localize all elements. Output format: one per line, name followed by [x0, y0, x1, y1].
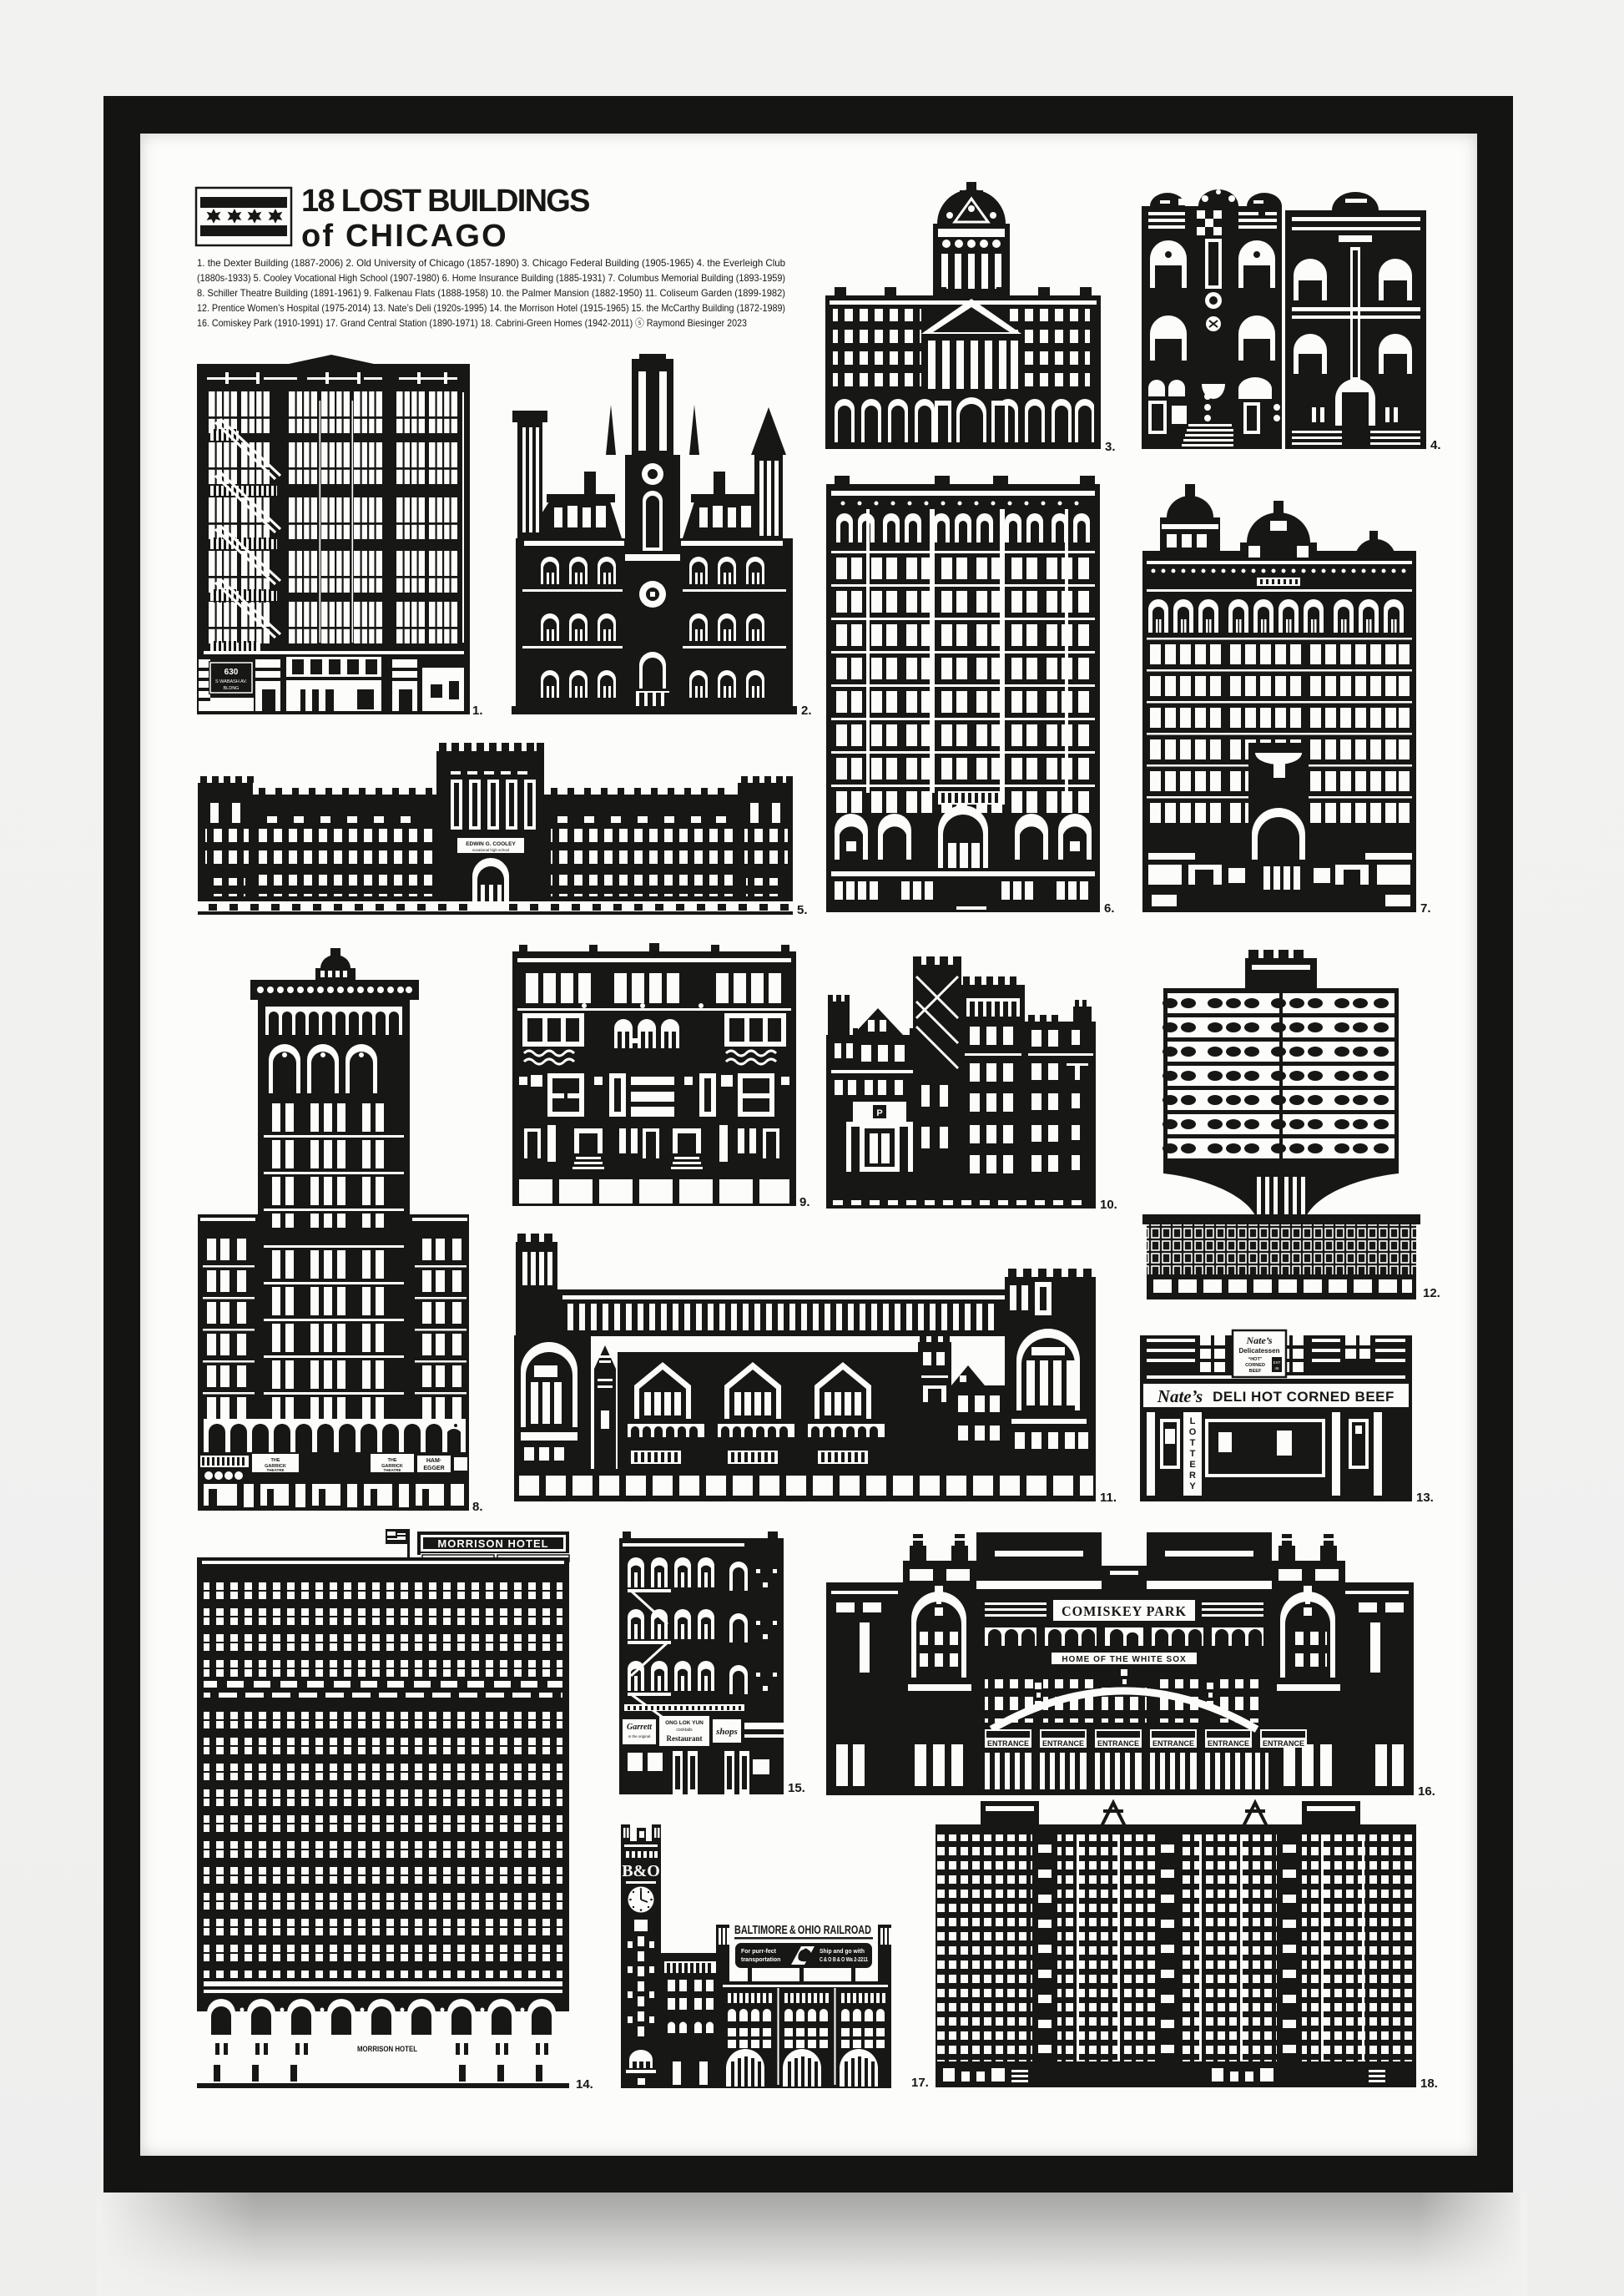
svg-text:18.: 18.	[1420, 2076, 1438, 2091]
svg-text:8.: 8.	[472, 1500, 483, 1514]
svg-text:HAM·: HAM·	[426, 1458, 441, 1464]
svg-text:Nate’s: Nate’s	[1245, 1335, 1272, 1346]
svg-text:15.: 15.	[788, 1781, 805, 1795]
svg-text:CORNED: CORNED	[1245, 1363, 1265, 1368]
svg-text:EDWIN G. COOLEY: EDWIN G. COOLEY	[466, 841, 516, 847]
svg-text:18 LOST BUILDINGS: 18 LOST BUILDINGS	[301, 184, 589, 219]
svg-text:T: T	[1190, 1449, 1196, 1459]
svg-text:ONG LOK YUN: ONG LOK YUN	[665, 1720, 704, 1726]
svg-text:T: T	[1190, 1438, 1196, 1448]
svg-text:E: E	[1189, 1460, 1195, 1470]
svg-text:of CHICAGO: of CHICAGO	[301, 219, 508, 254]
svg-text:4.: 4.	[1430, 438, 1441, 452]
svg-text:14.: 14.	[576, 2077, 593, 2092]
svg-text:“HOT”: “HOT”	[1248, 1357, 1262, 1362]
svg-text:P: P	[876, 1108, 882, 1118]
svg-text:S WABASH AV.: S WABASH AV.	[215, 679, 247, 684]
svg-text:(1880s-1933) 5. Cooley Vocati: (1880s-1933) 5. Cooley Vocational High S…	[197, 272, 785, 284]
svg-text:MORRISON HOTEL: MORRISON HOTEL	[357, 2045, 417, 2054]
svg-text:EGGER: EGGER	[423, 1466, 444, 1471]
svg-text:Y: Y	[1189, 1481, 1196, 1491]
svg-text:Garrett: Garrett	[627, 1723, 653, 1732]
svg-text:vocational high school: vocational high school	[472, 848, 509, 852]
svg-text:13.: 13.	[1416, 1491, 1434, 1505]
svg-text:2.: 2.	[801, 704, 812, 718]
svg-text:46: 46	[1274, 1366, 1279, 1370]
svg-text:THEATRE: THEATRE	[267, 1468, 285, 1472]
svg-text:THE: THE	[388, 1458, 397, 1463]
svg-text:Nate’s: Nate’s	[1157, 1386, 1203, 1406]
svg-text:ENTRANCE: ENTRANCE	[987, 1739, 1029, 1748]
svg-text:B&O: B&O	[622, 1862, 660, 1880]
svg-text:transportation: transportation	[741, 1957, 780, 1963]
svg-text:BLDNG: BLDNG	[224, 686, 240, 691]
svg-text:BALTIMORE & OHIO RAILROAD: BALTIMORE & OHIO RAILROAD	[734, 1924, 871, 1937]
svg-text:6.: 6.	[1104, 901, 1115, 916]
svg-text:THEATRE: THEATRE	[384, 1468, 401, 1472]
svg-text:MORRISON HOTEL: MORRISON HOTEL	[437, 1537, 548, 1550]
svg-text:O: O	[1189, 1427, 1197, 1437]
svg-text:BEEF: BEEF	[1249, 1369, 1262, 1374]
svg-text:cocktails: cocktails	[676, 1728, 693, 1733]
svg-text:EST: EST	[1273, 1360, 1281, 1365]
svg-text:C & O B & O Wa 2-2211: C & O B & O Wa 2-2211	[820, 1957, 868, 1963]
svg-text:HOME OF THE WHITE SOX: HOME OF THE WHITE SOX	[1062, 1655, 1186, 1664]
svg-text:12.: 12.	[1423, 1286, 1440, 1300]
svg-text:10.: 10.	[1100, 1198, 1117, 1212]
svg-text:R: R	[1189, 1471, 1196, 1481]
svg-text:8. Schiller Theatre Building (: 8. Schiller Theatre Building (1891-1961)…	[197, 287, 785, 299]
svg-text:9.: 9.	[799, 1195, 810, 1209]
svg-text:in the original: in the original	[628, 1734, 651, 1738]
svg-text:7.: 7.	[1420, 901, 1431, 916]
svg-text:shops: shops	[715, 1727, 738, 1737]
svg-text:17.: 17.	[911, 2076, 929, 2090]
svg-text:1.: 1.	[472, 704, 483, 718]
svg-text:L: L	[1190, 1416, 1196, 1426]
svg-text:630: 630	[224, 668, 239, 677]
svg-text:Restaurant: Restaurant	[667, 1734, 703, 1743]
svg-text:Delicatessen: Delicatessen	[1239, 1347, 1280, 1355]
svg-text:12. Prentice Women’s Hospital: 12. Prentice Women’s Hospital (1975-2014…	[197, 302, 785, 314]
svg-text:For purr-fect: For purr-fect	[741, 1949, 777, 1955]
svg-text:THE: THE	[271, 1458, 280, 1463]
svg-text:1. the Dexter Building (1887-2: 1. the Dexter Building (1887-2006) 2. Ol…	[197, 257, 785, 269]
svg-text:11.: 11.	[1100, 1491, 1117, 1505]
svg-text:Ship and go with: Ship and go with	[820, 1949, 865, 1955]
svg-text:5.: 5.	[797, 903, 808, 917]
svg-text:COMISKEY PARK: COMISKEY PARK	[1062, 1603, 1187, 1619]
svg-text:16. Comiskey Park (1910-1991): 16. Comiskey Park (1910-1991) 17. Grand …	[197, 317, 747, 329]
svg-text:3.: 3.	[1105, 440, 1116, 454]
svg-text:DELI HOT CORNED BEEF: DELI HOT CORNED BEEF	[1213, 1389, 1395, 1405]
svg-text:16.: 16.	[1418, 1784, 1435, 1799]
